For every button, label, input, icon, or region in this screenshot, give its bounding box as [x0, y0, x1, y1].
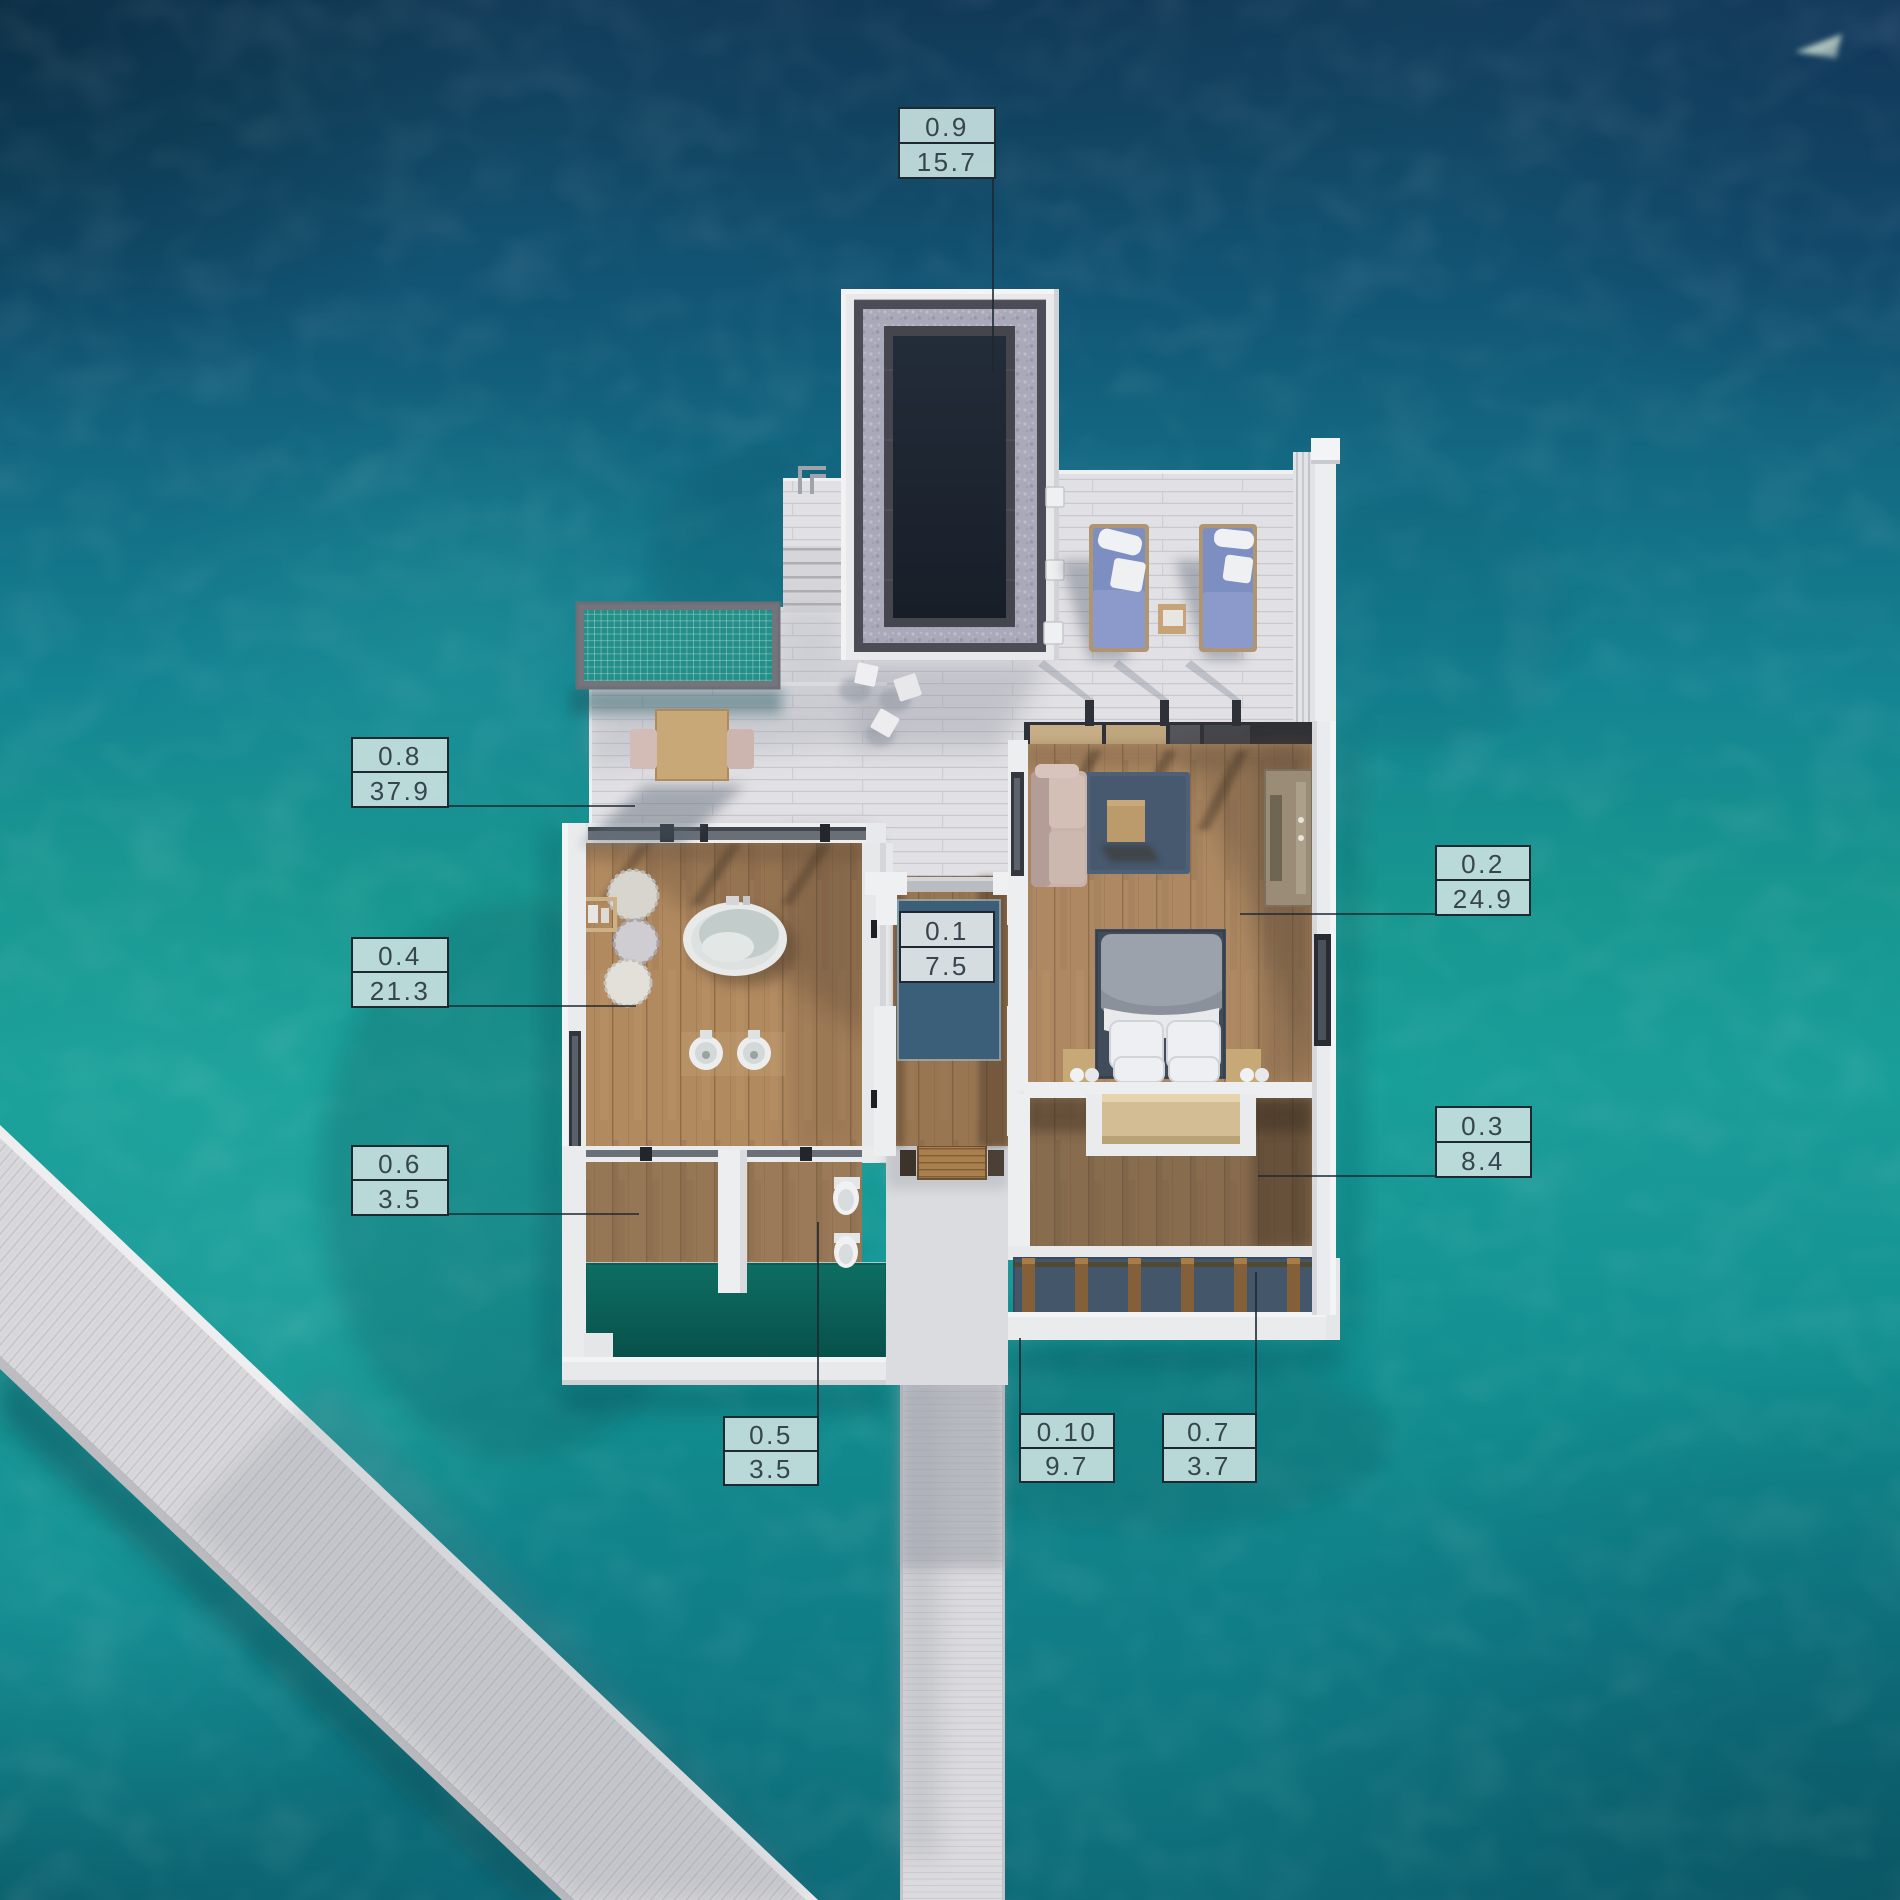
svg-text:15.7: 15.7: [917, 147, 978, 177]
svg-text:3.7: 3.7: [1187, 1451, 1231, 1481]
svg-text:3.5: 3.5: [749, 1454, 793, 1484]
svg-text:21.3: 21.3: [370, 976, 431, 1006]
svg-text:0.10: 0.10: [1037, 1417, 1098, 1447]
svg-text:3.5: 3.5: [378, 1184, 422, 1214]
svg-text:37.9: 37.9: [370, 776, 431, 806]
svg-text:9.7: 9.7: [1045, 1451, 1089, 1481]
svg-text:0.5: 0.5: [749, 1420, 793, 1450]
svg-text:0.1: 0.1: [925, 916, 969, 946]
svg-text:0.6: 0.6: [378, 1149, 422, 1179]
svg-text:0.4: 0.4: [378, 941, 422, 971]
svg-text:8.4: 8.4: [1461, 1146, 1505, 1176]
svg-text:7.5: 7.5: [925, 951, 969, 981]
svg-text:0.9: 0.9: [925, 112, 969, 142]
svg-text:24.9: 24.9: [1453, 884, 1514, 914]
svg-text:0.3: 0.3: [1461, 1111, 1505, 1141]
svg-text:0.7: 0.7: [1187, 1417, 1231, 1447]
svg-text:0.2: 0.2: [1461, 849, 1505, 879]
svg-text:0.8: 0.8: [378, 741, 422, 771]
